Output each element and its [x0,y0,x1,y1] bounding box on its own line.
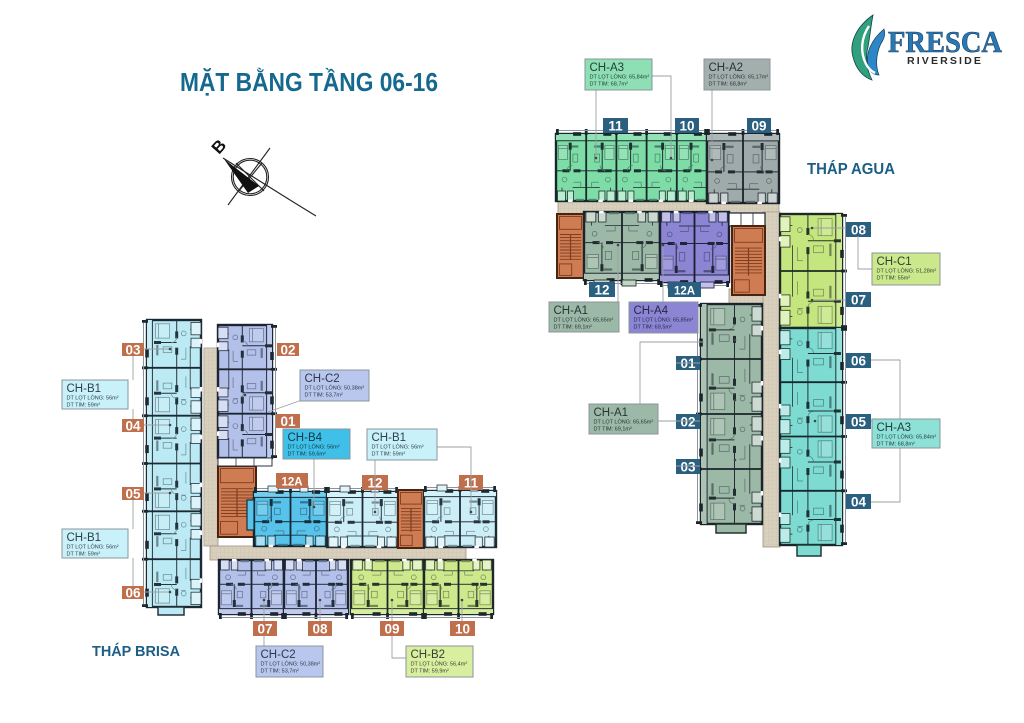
svg-text:12A: 12A [674,285,695,297]
svg-text:05: 05 [851,414,867,429]
svg-text:DT TIM: 59,6m²: DT TIM: 59,6m² [288,452,326,458]
svg-text:06: 06 [851,353,867,368]
svg-text:MẶT BẰNG TẦNG 06-16: MẶT BẰNG TẦNG 06-16 [180,67,438,97]
svg-text:CH-B1: CH-B1 [67,532,102,544]
svg-text:CH-A2: CH-A2 [709,62,744,74]
svg-text:DT TIM: 69,1m²: DT TIM: 69,1m² [554,325,592,331]
svg-text:12A: 12A [281,476,302,488]
svg-text:09: 09 [384,621,399,636]
svg-text:06: 06 [125,585,141,600]
svg-text:CH-B2: CH-B2 [411,649,446,661]
svg-text:10: 10 [455,621,470,636]
svg-text:07: 07 [257,621,272,636]
svg-text:09: 09 [751,118,766,133]
svg-text:DT LỌT LÒNG: 50,38m²: DT LỌT LÒNG: 50,38m² [261,661,321,668]
svg-text:01: 01 [280,414,296,429]
svg-text:DT LỌT LÒNG: 65,65m²: DT LỌT LÒNG: 65,65m² [554,317,614,324]
svg-text:DT LỌT LÒNG: 65,65m²: DT LỌT LÒNG: 65,65m² [594,419,654,426]
svg-text:CH-A4: CH-A4 [634,305,669,317]
svg-text:DT TIM: 69,5m²: DT TIM: 69,5m² [634,325,672,331]
svg-text:02: 02 [680,414,695,429]
svg-text:CH-C2: CH-C2 [305,373,340,385]
svg-text:DT LỌT LÒNG: 56m²: DT LỌT LÒNG: 56m² [67,544,119,551]
svg-text:DT TIM: 55m²: DT TIM: 55m² [877,276,911,282]
svg-text:03: 03 [680,459,696,474]
svg-text:04: 04 [851,494,867,509]
svg-text:04: 04 [125,418,141,433]
svg-text:CH-A1: CH-A1 [554,305,589,317]
svg-text:11: 11 [608,118,623,133]
svg-text:DT LỌT LÒNG: 65,85m²: DT LỌT LÒNG: 65,85m² [634,317,694,324]
svg-text:DT TIM: 68,8m²: DT TIM: 68,8m² [877,442,915,448]
svg-text:CH-B1: CH-B1 [372,432,407,444]
svg-text:12: 12 [594,282,609,297]
svg-text:DT LỌT LÒNG: 50,38m²: DT LỌT LÒNG: 50,38m² [305,385,365,392]
svg-text:DT TIM: 68,7m²: DT TIM: 68,7m² [590,82,628,88]
svg-text:CH-B1: CH-B1 [67,383,102,395]
svg-text:DT TIM: 68,8m²: DT TIM: 68,8m² [709,82,747,88]
svg-text:DT LỌT LÒNG: 65,84m²: DT LỌT LÒNG: 65,84m² [590,74,650,81]
svg-text:DT LỌT LÒNG: 65,84m²: DT LỌT LÒNG: 65,84m² [877,434,937,441]
svg-text:CH-C1: CH-C1 [877,256,912,268]
svg-text:03: 03 [125,342,141,357]
svg-text:DT TIM: 59m²: DT TIM: 59m² [372,452,406,458]
svg-text:CH-C2: CH-C2 [261,649,296,661]
svg-text:RIVERSIDE: RIVERSIDE [907,56,983,67]
svg-text:DT TIM: 59,9m²: DT TIM: 59,9m² [411,669,449,675]
svg-text:THÁP BRISA: THÁP BRISA [92,643,180,660]
svg-text:08: 08 [312,621,328,636]
svg-text:DT TIM: 69,1m²: DT TIM: 69,1m² [594,427,632,433]
svg-text:DT TIM: 53,7m²: DT TIM: 53,7m² [261,669,299,675]
svg-text:08: 08 [851,222,867,237]
svg-text:CH-B4: CH-B4 [288,432,323,444]
svg-text:10: 10 [679,118,694,133]
svg-text:DT TIM: 59m²: DT TIM: 59m² [67,403,101,409]
svg-text:FRESCA: FRESCA [888,24,1003,59]
svg-text:DT TIM: 59m²: DT TIM: 59m² [67,552,101,558]
svg-text:DT LỌT LÒNG: 51,28m²: DT LỌT LÒNG: 51,28m² [877,268,937,275]
svg-text:CH-A3: CH-A3 [877,422,912,434]
svg-text:DT LỌT LÒNG: 56m²: DT LỌT LÒNG: 56m² [67,395,119,402]
svg-text:DT LỌT LÒNG: 56m²: DT LỌT LÒNG: 56m² [288,444,340,451]
svg-text:CH-A1: CH-A1 [594,407,629,419]
svg-text:05: 05 [125,486,141,501]
svg-text:THÁP AGUA: THÁP AGUA [807,159,895,178]
svg-text:DT LỌT LÒNG: 56m²: DT LỌT LÒNG: 56m² [372,444,424,451]
svg-text:CH-A3: CH-A3 [590,62,625,74]
svg-text:DT LỌT LÒNG: 56,4m²: DT LỌT LÒNG: 56,4m² [411,661,468,668]
svg-text:02: 02 [280,342,295,357]
svg-text:DT LỌT LÒNG: 65,17m²: DT LỌT LÒNG: 65,17m² [709,74,769,81]
svg-text:DT TIM: 53,7m²: DT TIM: 53,7m² [305,393,343,399]
svg-text:07: 07 [851,292,866,307]
